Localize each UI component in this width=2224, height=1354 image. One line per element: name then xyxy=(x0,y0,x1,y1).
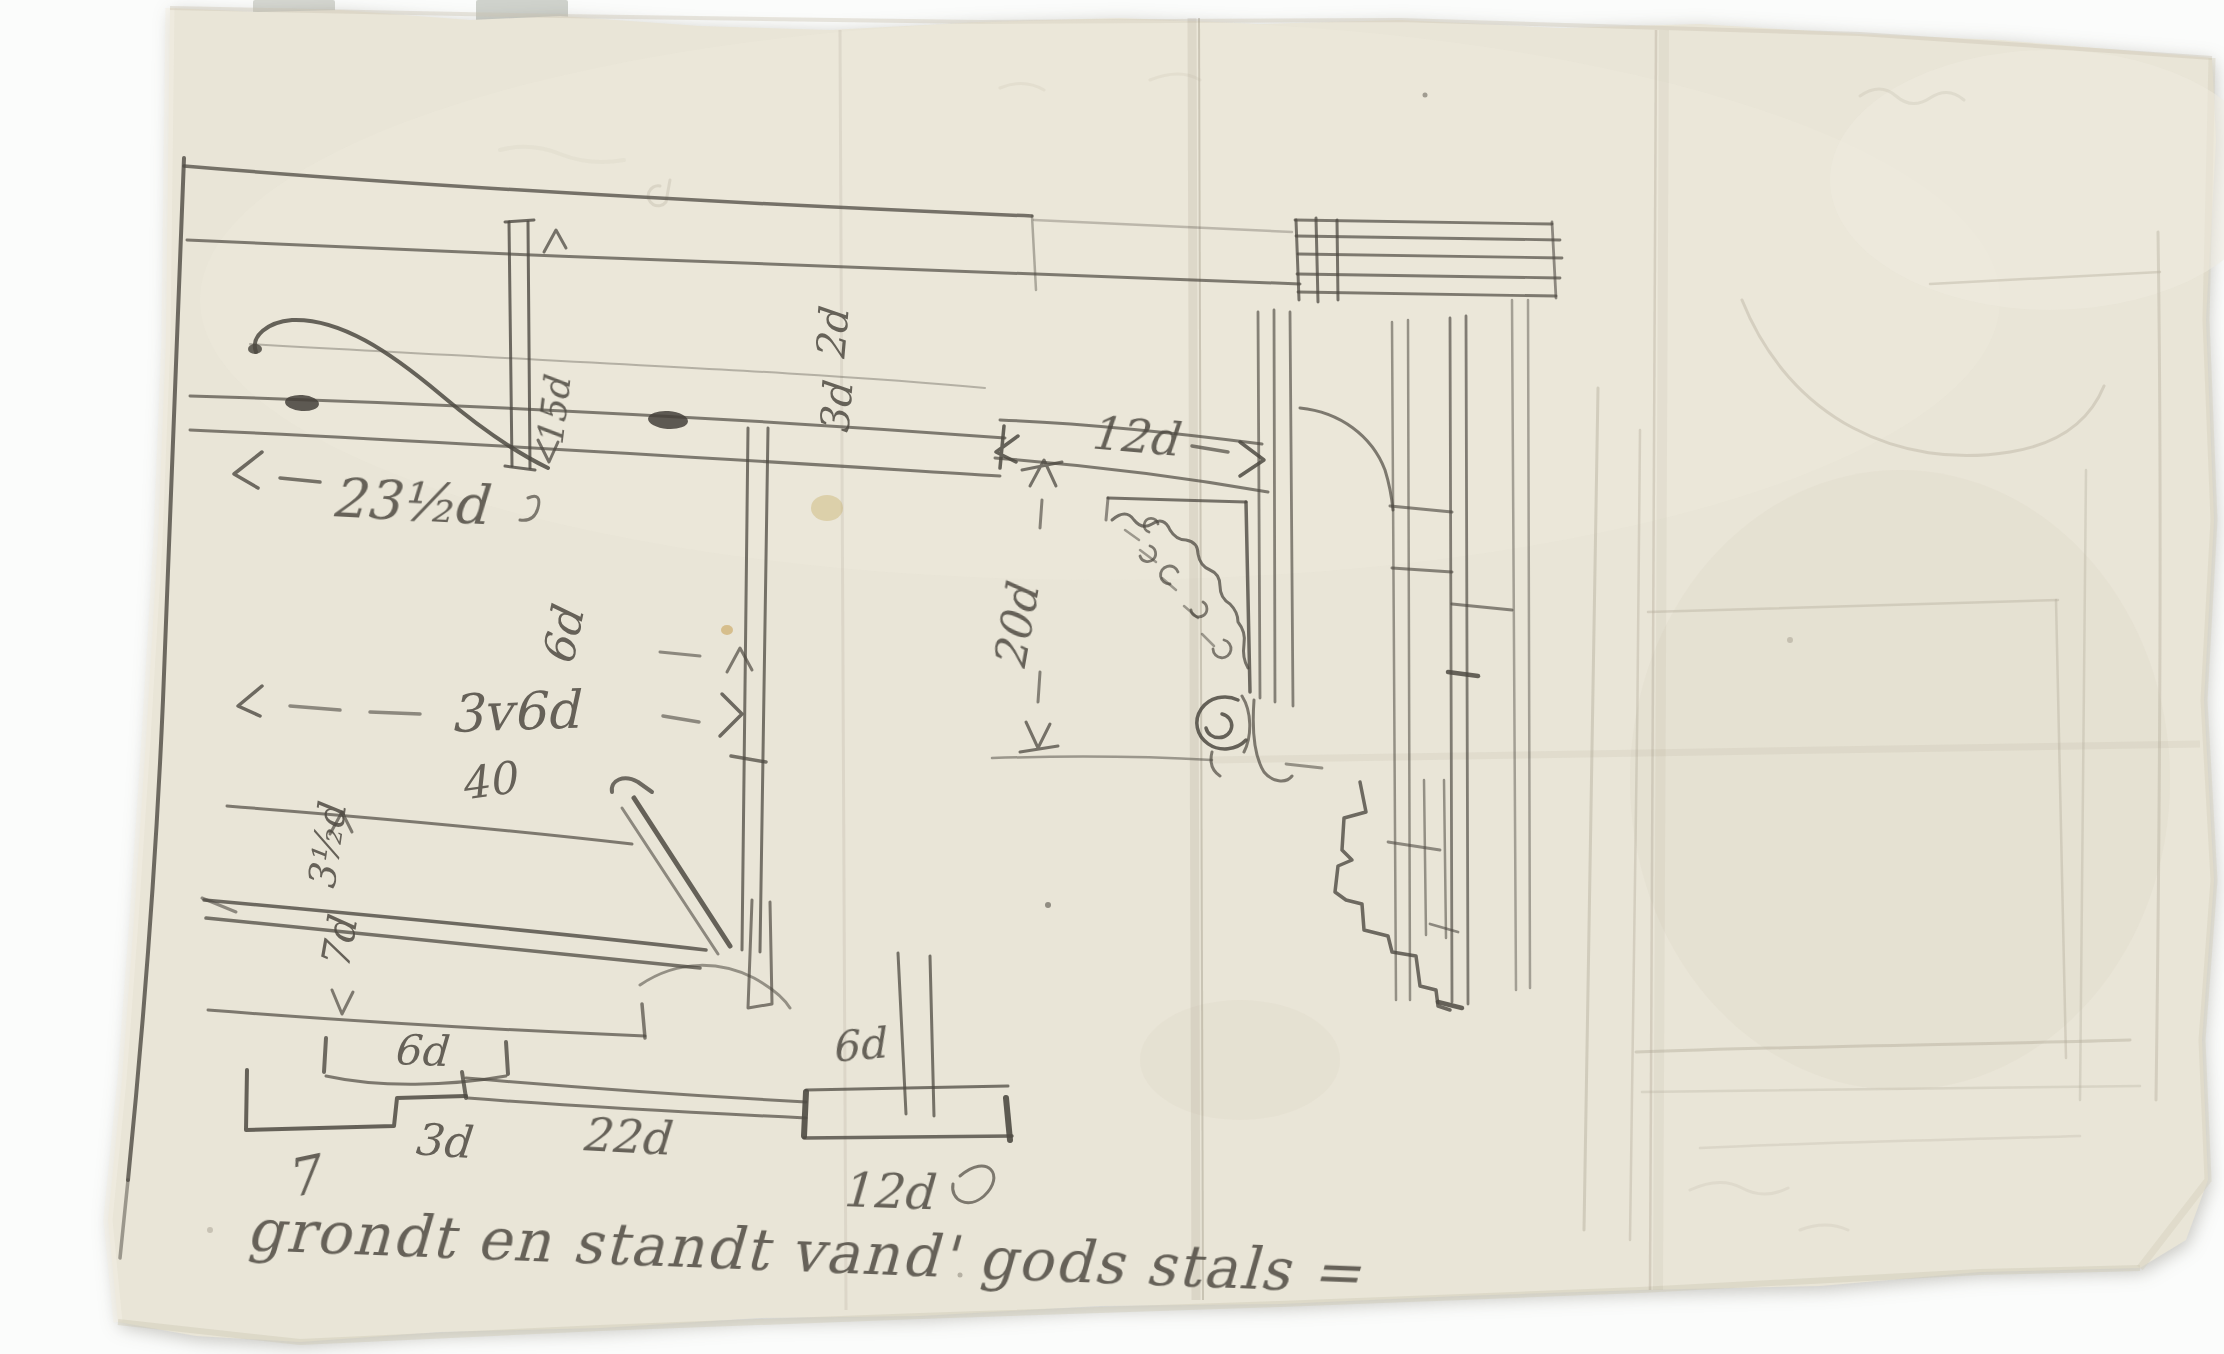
curl-2d-label: 2d xyxy=(807,305,858,363)
curl-3d-label: 3d xyxy=(811,379,862,437)
plan-22d-label: 22d xyxy=(579,1107,673,1166)
plan-3d-label: 3d xyxy=(411,1113,474,1168)
tan-stain xyxy=(811,495,843,521)
plan-6d-left-label: 6d xyxy=(392,1025,451,1076)
photographed-sketch-sheet: 23½d 12d 15d 20d 3v6d 40 2d 3d 6d 3½d 7d… xyxy=(0,0,2224,1354)
plan-12d-label: 12d xyxy=(840,1161,938,1220)
dim-3v6d-label: 3v6d xyxy=(448,679,584,744)
note-40-label: 40 xyxy=(456,751,523,810)
plan-6d-right-label: 6d xyxy=(829,1018,891,1072)
plan-rect-bottom xyxy=(804,1136,1012,1138)
dim-23half-label: 23½d xyxy=(329,466,492,537)
dim-15d-label: 15d xyxy=(529,373,578,449)
dim-12d-top-label: 12d xyxy=(1087,405,1183,467)
